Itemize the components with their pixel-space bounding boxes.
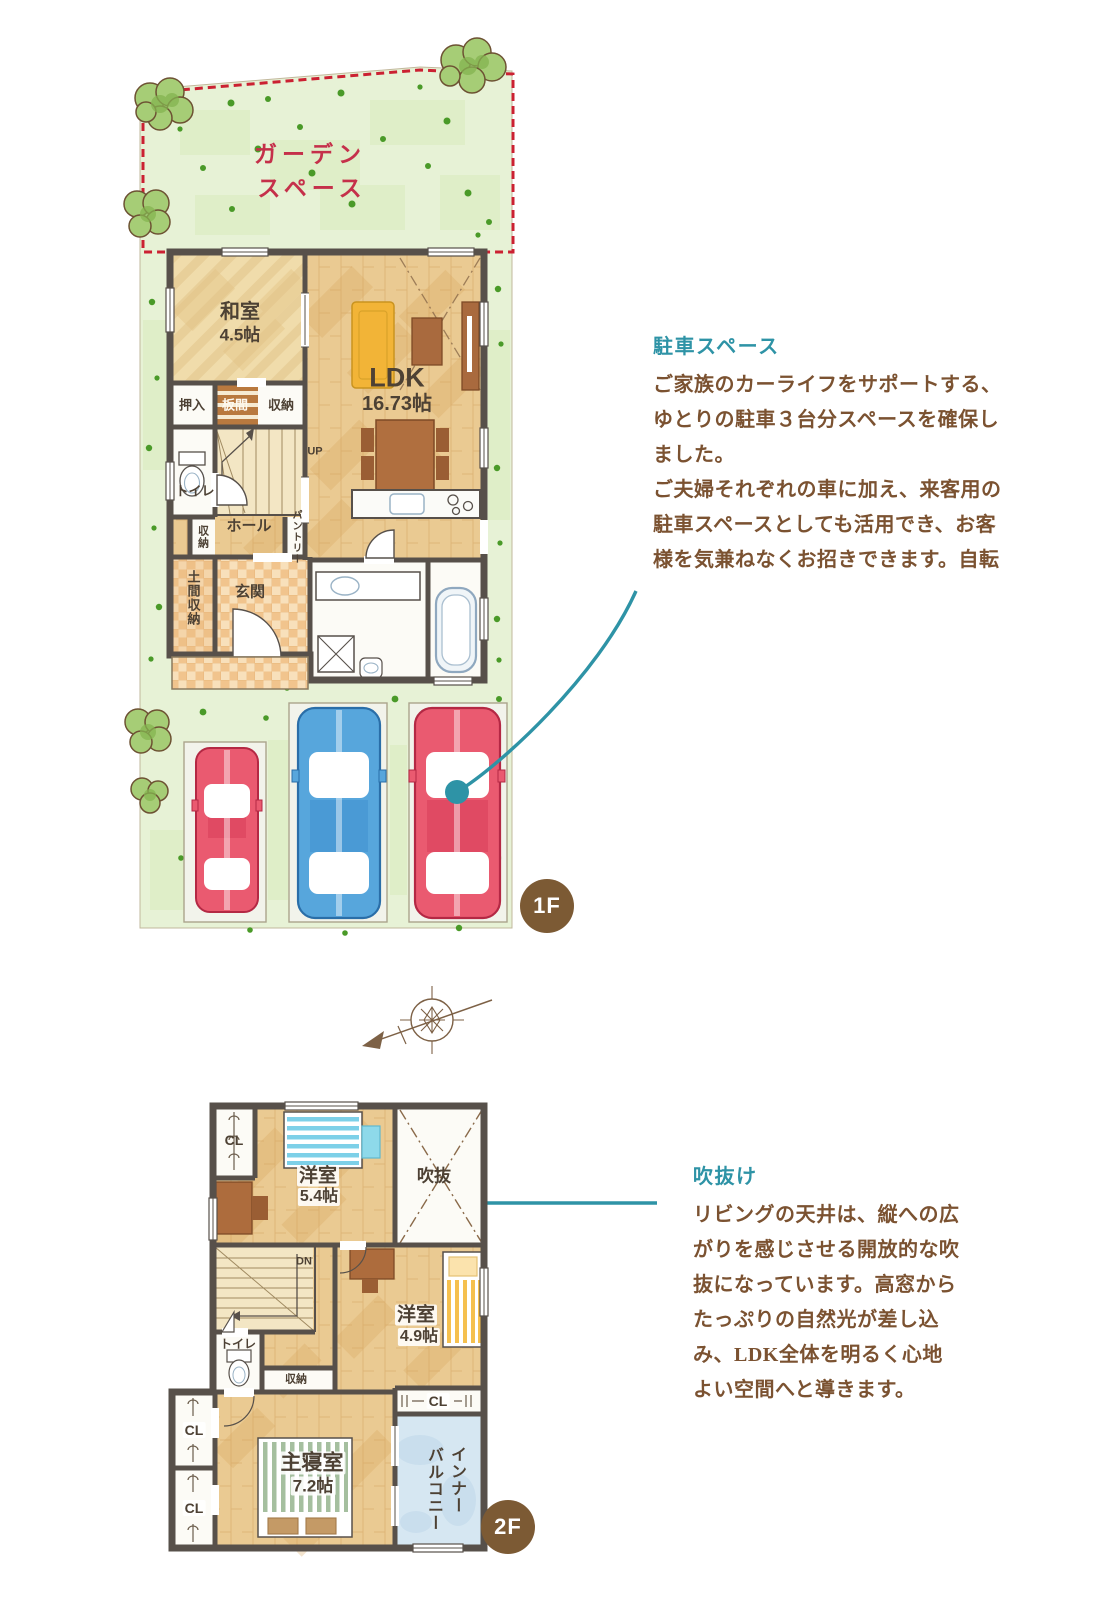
- note-void-line: よい空間へと導きます。: [693, 1373, 960, 1408]
- vanity: [316, 572, 420, 600]
- leader-dot-parking: [445, 780, 469, 804]
- note-void: 吹抜け リビングの天井は、縦への広 がりを感じさせる開放的な吹 抜になっています…: [693, 1160, 960, 1408]
- label-washitsu-size: 4.5帖: [220, 327, 261, 344]
- note-void-line: がりを感じさせる開放的な吹: [693, 1233, 960, 1268]
- note-parking-line: ご夫婦それぞれの車に加え、来客用の: [653, 473, 1002, 508]
- label-washitsu: 和室: [220, 302, 260, 322]
- note-parking-line: ご家族のカーライフをサポートする、: [653, 368, 1002, 403]
- note-void-line: み、LDK全体を明るく心地: [693, 1338, 960, 1373]
- label-fukinuke: 吹抜: [417, 1168, 451, 1185]
- car-red-small: [192, 748, 262, 912]
- label-shunou-b: 収納: [197, 525, 208, 549]
- label-yoshitsu1-size: 5.4帖: [298, 1188, 340, 1206]
- note-void-line: リビングの天井は、縦への広: [693, 1198, 960, 1233]
- floor1-plan: [166, 248, 488, 689]
- label-stairs-dn: DN: [296, 1257, 312, 1268]
- label-balcony-line1: インナー: [448, 1446, 464, 1514]
- garden-label-line2: スペース: [257, 169, 366, 203]
- label-cl-a: CL: [225, 1133, 244, 1147]
- tree: [135, 78, 193, 130]
- pillow: [362, 1126, 380, 1158]
- compass-icon: [362, 986, 492, 1054]
- label-cl-b: CL: [183, 1422, 206, 1438]
- cabinet: [412, 318, 442, 365]
- label-stairs-up: UP: [307, 447, 322, 458]
- floor2-badge: 2F: [481, 1500, 535, 1554]
- label-cl-c: CL: [183, 1500, 206, 1516]
- note-void-line: たっぷりの自然光が差し込: [693, 1303, 960, 1338]
- note-parking: 駐車スペース ご家族のカーライフをサポートする、 ゆとりの駐車３台分スペースを確…: [653, 330, 1002, 578]
- label-pantry: パントリー: [290, 510, 300, 565]
- label-yoshitsu1: 洋室: [297, 1166, 339, 1187]
- label-toilet-2f: トイレ: [220, 1338, 256, 1350]
- label-balcony-line2: バルコニー: [425, 1447, 441, 1532]
- car-red-large: [409, 708, 505, 918]
- laundry-sink: [360, 658, 382, 678]
- tree: [125, 709, 171, 753]
- note-parking-line: ゆとりの駐車３台分スペースを確保し: [653, 403, 1002, 438]
- washing-machine: [318, 636, 354, 672]
- note-void-line: 抜になっています。高窓から: [693, 1268, 960, 1303]
- label-ldk: LDK: [369, 365, 425, 392]
- floor1-badge: 1F: [520, 879, 574, 933]
- label-cl-d: CL: [427, 1393, 450, 1409]
- car-blue: [292, 708, 386, 918]
- label-toilet-1f: トイレ: [175, 485, 214, 498]
- note-parking-line: 様を気兼ねなくお招きできます。自転: [653, 543, 1002, 578]
- tree: [124, 190, 170, 237]
- entrance-approach: [172, 657, 308, 689]
- note-parking-line: 駐車スペースとしても活用でき、お客: [653, 508, 1002, 543]
- kitchen-counter: [352, 490, 480, 518]
- label-shushinshitsu-size: 7.2帖: [291, 1477, 336, 1496]
- garden-label-line1: ガーデン: [254, 135, 366, 169]
- tv-board: [462, 302, 479, 390]
- label-ldk-size: 16.73帖: [362, 394, 432, 414]
- label-itanoma: 板間: [222, 399, 248, 412]
- note-void-title: 吹抜け: [693, 1160, 960, 1189]
- bed-yellow: [443, 1252, 483, 1347]
- label-shunou-a: 収納: [268, 399, 294, 412]
- label-doma: 土間収納: [187, 570, 200, 626]
- label-genkan: 玄関: [235, 585, 265, 600]
- pillow: [449, 1257, 477, 1276]
- label-yoshitsu2: 洋室: [395, 1305, 437, 1326]
- toilet-fixture-2f: [227, 1350, 251, 1386]
- label-yoshitsu2-size: 4.9帖: [398, 1328, 440, 1346]
- label-hall: ホール: [226, 519, 271, 534]
- label-oshiire: 押入: [179, 399, 205, 412]
- pillow: [268, 1518, 298, 1534]
- label-shushinshitsu: 主寝室: [279, 1452, 346, 1475]
- kitchen-sink: [390, 494, 424, 514]
- pillow: [306, 1518, 336, 1534]
- label-shunou-2f: 収納: [285, 1375, 307, 1386]
- note-parking-line: ました。: [653, 438, 1002, 473]
- floorplan-sheet: ガーデン スペース 和室 4.5帖 押入 板間 収納 トイレ 収納 ホール パン…: [0, 0, 1100, 1597]
- bathtub: [436, 588, 476, 672]
- note-parking-title: 駐車スペース: [653, 330, 1002, 359]
